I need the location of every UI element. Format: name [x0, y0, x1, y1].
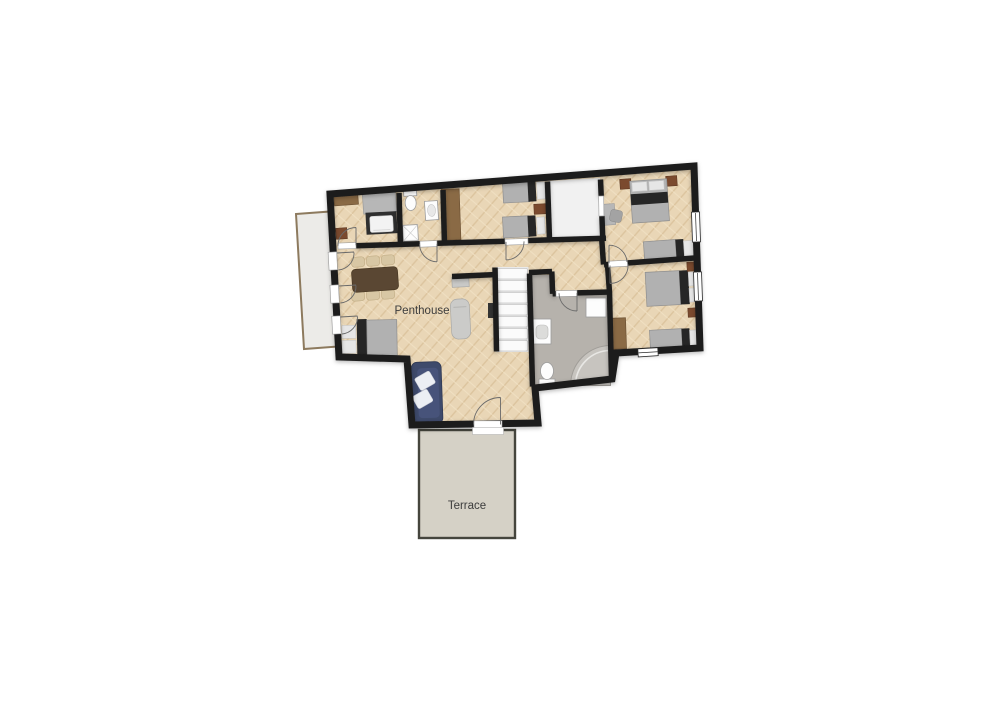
- chaise-lounge: [450, 299, 471, 340]
- shower-tray: [403, 225, 419, 242]
- double-bed: [645, 270, 699, 307]
- interior-wall: [602, 240, 604, 265]
- stove: [365, 211, 397, 235]
- dining-chair: [381, 255, 395, 266]
- bathroom-cabinet: [586, 298, 606, 317]
- bathroom-vanity: [533, 319, 551, 344]
- floor-plan-canvas: Penthouse Terrace: [0, 0, 1000, 707]
- sofa: [411, 361, 443, 424]
- wc-sink: [424, 201, 438, 221]
- window: [693, 272, 702, 301]
- interior-wall: [399, 193, 401, 246]
- terrace-label: Terrace: [448, 500, 486, 512]
- kitchen-counter: [362, 192, 396, 214]
- stairs-wall-left: [495, 268, 497, 352]
- window: [638, 348, 658, 357]
- double-bed: [630, 179, 670, 223]
- storage-room-floor: [549, 178, 602, 241]
- desk-chair: [609, 209, 623, 223]
- wardrobe: [611, 318, 626, 349]
- penthouse-label: Penthouse: [395, 305, 450, 317]
- nightstand: [534, 204, 547, 215]
- dining-table: [351, 266, 398, 292]
- stairs-wall-right: [530, 274, 533, 387]
- kitchen-crate: [336, 228, 348, 240]
- nightstand: [666, 176, 678, 187]
- interior-wall: [443, 190, 445, 245]
- terrace: [419, 430, 515, 538]
- staircase: [497, 267, 529, 352]
- window: [691, 212, 700, 242]
- storage-wall-left: [548, 182, 550, 241]
- nook-wall: [452, 275, 497, 277]
- door-storage: [599, 196, 604, 216]
- dining-chair: [366, 256, 380, 267]
- floor-plan-svg: Penthouse Terrace: [0, 0, 1000, 707]
